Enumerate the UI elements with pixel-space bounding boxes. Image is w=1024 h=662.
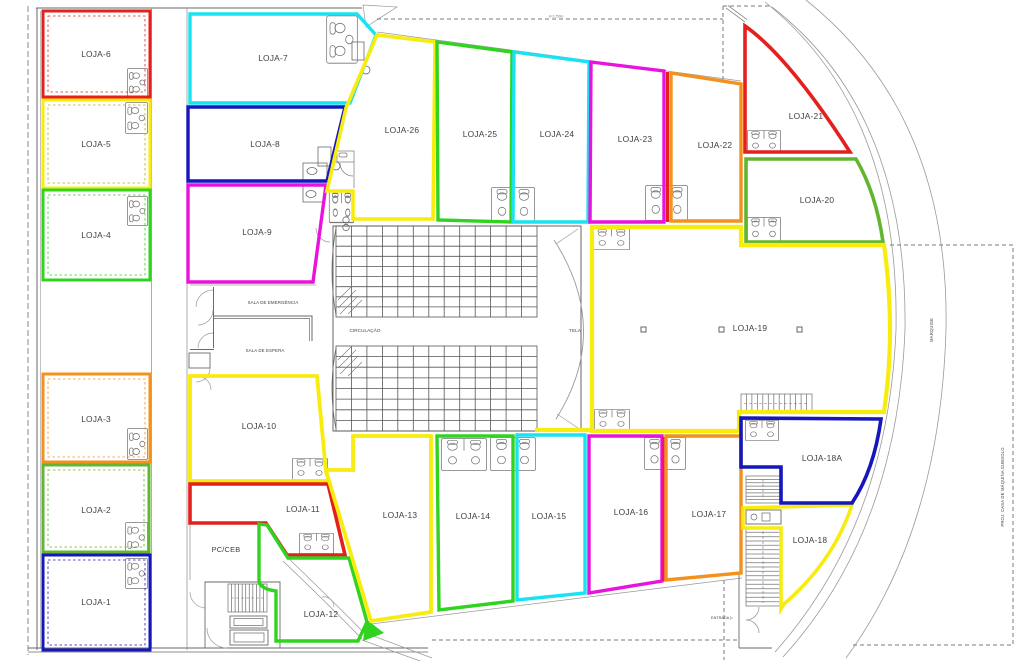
svg-text:LOJA-3: LOJA-3 [81, 414, 111, 424]
svg-text:LOJA-17: LOJA-17 [692, 509, 727, 519]
svg-text:LOJA-6: LOJA-6 [81, 49, 111, 59]
svg-text:LOJA-15: LOJA-15 [532, 511, 567, 521]
svg-text:LOJA-7: LOJA-7 [258, 53, 288, 63]
svg-text:LOJA-22: LOJA-22 [698, 140, 733, 150]
svg-text:LOJA-12: LOJA-12 [304, 609, 339, 619]
svg-text:SALA DE EMERGÊNCIA: SALA DE EMERGÊNCIA [248, 300, 299, 305]
svg-text:LOJA-25: LOJA-25 [463, 129, 498, 139]
svg-text:LOJA-19: LOJA-19 [733, 323, 768, 333]
svg-text:LOJA-5: LOJA-5 [81, 139, 111, 149]
svg-text:PROJ. CASA DE MÁQUINA SUBSOLO: PROJ. CASA DE MÁQUINA SUBSOLO [1000, 447, 1005, 527]
svg-text:LOJA-18A: LOJA-18A [802, 453, 842, 463]
svg-text:SALA DE ESPERA: SALA DE ESPERA [246, 348, 285, 353]
svg-text:LOJA-21: LOJA-21 [789, 111, 824, 121]
svg-text:A=1.250m: A=1.250m [549, 15, 564, 19]
svg-text:ENTRADA ▷: ENTRADA ▷ [711, 616, 734, 620]
svg-text:LOJA-1: LOJA-1 [81, 597, 111, 607]
svg-text:LOJA-24: LOJA-24 [540, 129, 575, 139]
svg-text:TELA: TELA [569, 328, 582, 333]
svg-text:CIRCULAÇÃO: CIRCULAÇÃO [349, 327, 380, 333]
svg-text:LOJA-18: LOJA-18 [793, 535, 828, 545]
svg-text:LOJA-4: LOJA-4 [81, 230, 111, 240]
svg-text:LOJA-23: LOJA-23 [618, 134, 653, 144]
svg-text:LOJA-8: LOJA-8 [250, 139, 280, 149]
svg-text:LOJA-20: LOJA-20 [800, 195, 835, 205]
svg-text:MARQUISE: MARQUISE [929, 318, 934, 342]
svg-text:LOJA-2: LOJA-2 [81, 505, 111, 515]
svg-text:LOJA-10: LOJA-10 [242, 421, 277, 431]
svg-text:LOJA-11: LOJA-11 [286, 504, 320, 514]
svg-text:LOJA-13: LOJA-13 [383, 510, 418, 520]
svg-text:LOJA-9: LOJA-9 [242, 227, 272, 237]
svg-text:LOJA-16: LOJA-16 [614, 507, 649, 517]
svg-text:PC/CEB: PC/CEB [212, 545, 241, 554]
svg-text:LOJA-26: LOJA-26 [385, 125, 420, 135]
svg-text:LOJA-14: LOJA-14 [456, 511, 491, 521]
